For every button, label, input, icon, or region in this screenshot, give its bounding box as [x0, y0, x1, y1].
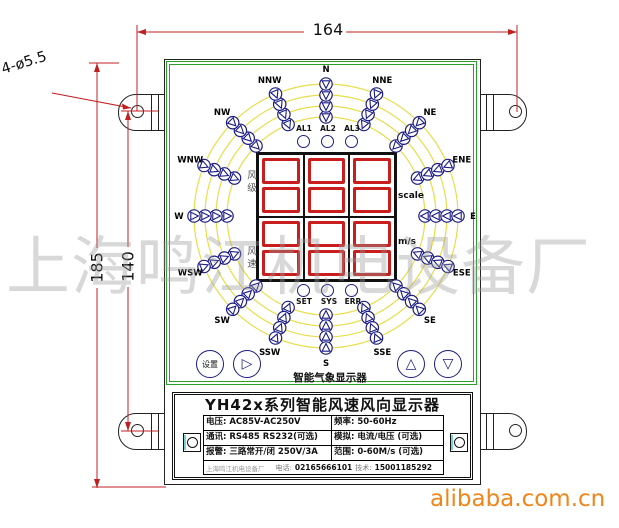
- alarm-led-label: AL1: [296, 124, 312, 133]
- direction-label: SW: [214, 316, 230, 326]
- spec-frequency: 频率: 50-60Hz: [332, 416, 443, 430]
- next-button: ▷: [233, 350, 261, 378]
- spec-analog: 模拟: 电流/电压 (可选): [332, 431, 443, 445]
- compass-leds: NNNENEENEEESESESSESSSWSWWSWWWNWNWNNW: [164, 59, 481, 389]
- screw-hole-icon: [454, 437, 465, 448]
- tab-bracket-lines: [151, 95, 159, 130]
- spec-table: 电压: AC85V-AC250V 频率: 50-60Hz 通讯: RS485 R…: [203, 415, 444, 475]
- company-name: 上海鸣江机电设备厂: [206, 463, 265, 473]
- direction-label: WSW: [178, 268, 203, 278]
- direction-label: NNE: [372, 76, 392, 86]
- tab-bracket-lines: [486, 95, 494, 130]
- tech-label: 技术:: [355, 463, 371, 473]
- mounting-hole-icon: [509, 105, 522, 118]
- direction-label: S: [323, 359, 329, 369]
- spec-footer: 上海鸣江机电设备厂 电话: 02165666101 技术: 1500118529…: [204, 461, 443, 474]
- spec-comm: 通讯: RS485 RS232(可选): [204, 431, 332, 445]
- panel-screw-right: [450, 433, 468, 452]
- spec-voltage: 电压: AC85V-AC250V: [204, 416, 332, 430]
- mounting-hole-icon: [131, 424, 144, 437]
- mounting-tab-bottom-right: [480, 413, 527, 450]
- status-led-label: SET: [296, 297, 312, 306]
- direction-label: ENE: [452, 156, 471, 166]
- dim-hole-spacing: 140: [119, 246, 138, 288]
- mounting-tab-top-right: [480, 94, 527, 131]
- alarm-led-label: AL2: [320, 124, 336, 133]
- alarm-led-label: AL3: [344, 124, 360, 133]
- dim-width: 164: [305, 20, 351, 39]
- alarm-led-icon: [321, 135, 334, 148]
- direction-label: E: [470, 212, 476, 222]
- device-caption: 智能气象显示器: [260, 370, 400, 385]
- table-row: 通讯: RS485 RS232(可选) 模拟: 电流/电压 (可选): [204, 431, 443, 446]
- set-button: 设置: [196, 350, 224, 378]
- technical-drawing-page: NNNENEENEEESESESSESSSWSWWSWWWNWNWNNW AL1…: [0, 0, 619, 528]
- mounting-tab-top-left: [118, 94, 165, 131]
- row-label-wind-speed: 风速: [243, 246, 257, 271]
- up-button: △: [397, 350, 425, 378]
- direction-label: W: [174, 212, 184, 222]
- screw-hole-icon: [187, 437, 198, 448]
- cyan-mark: [451, 435, 453, 450]
- tab-bracket-lines: [486, 414, 494, 449]
- status-led-label: SYS: [321, 297, 337, 306]
- direction-label: WNW: [177, 156, 203, 166]
- product-title: YH42x系列智能风速风向显示器: [174, 394, 471, 415]
- alibaba-brand-text: alibaba.com.cn: [430, 486, 605, 512]
- mounting-hole-icon: [509, 424, 522, 437]
- down-button: ▽: [434, 350, 462, 378]
- direction-label: NW: [214, 108, 231, 118]
- alarm-led-icon: [345, 135, 358, 148]
- table-row: 报警: 三路常开/闭 250V/3A 范围: 0-60M/s (可选): [204, 446, 443, 461]
- unit-label-ms: m/s: [398, 237, 416, 247]
- mounting-hole-icon: [131, 105, 144, 118]
- direction-label: NE: [423, 108, 436, 118]
- dim-height: 185: [88, 247, 107, 289]
- table-row: 电压: AC85V-AC250V 频率: 50-60Hz: [204, 416, 443, 431]
- unit-label-scale: scale: [398, 191, 424, 201]
- alarm-led-icon: [297, 135, 310, 148]
- direction-label: SE: [424, 316, 436, 326]
- direction-label: ESE: [453, 268, 471, 278]
- spec-range: 范围: 0-60M/s (可选): [332, 446, 443, 460]
- direction-label: SSW: [259, 348, 281, 358]
- status-led-icon: [297, 284, 310, 297]
- row-label-wind-scale: 风级: [243, 170, 257, 195]
- tab-bracket-lines: [151, 414, 159, 449]
- phone-label: 电话:: [276, 463, 292, 473]
- dim-mounting-holes: 4-ø5.5: [0, 39, 81, 78]
- spec-alarm: 报警: 三路常开/闭 250V/3A: [204, 446, 332, 460]
- mounting-tab-bottom-left: [118, 413, 165, 450]
- status-led-icon: [345, 284, 358, 297]
- direction-label: NNW: [258, 76, 282, 86]
- phone-number: 02165666101: [295, 463, 352, 472]
- status-led-icon: [321, 284, 334, 297]
- panel-screw-left: [183, 433, 201, 452]
- tech-number: 15001185292: [375, 463, 432, 472]
- direction-label: N: [322, 65, 329, 75]
- direction-label: SSE: [373, 348, 391, 358]
- cyan-mark: [184, 435, 186, 450]
- status-led-label: ERR: [345, 297, 362, 306]
